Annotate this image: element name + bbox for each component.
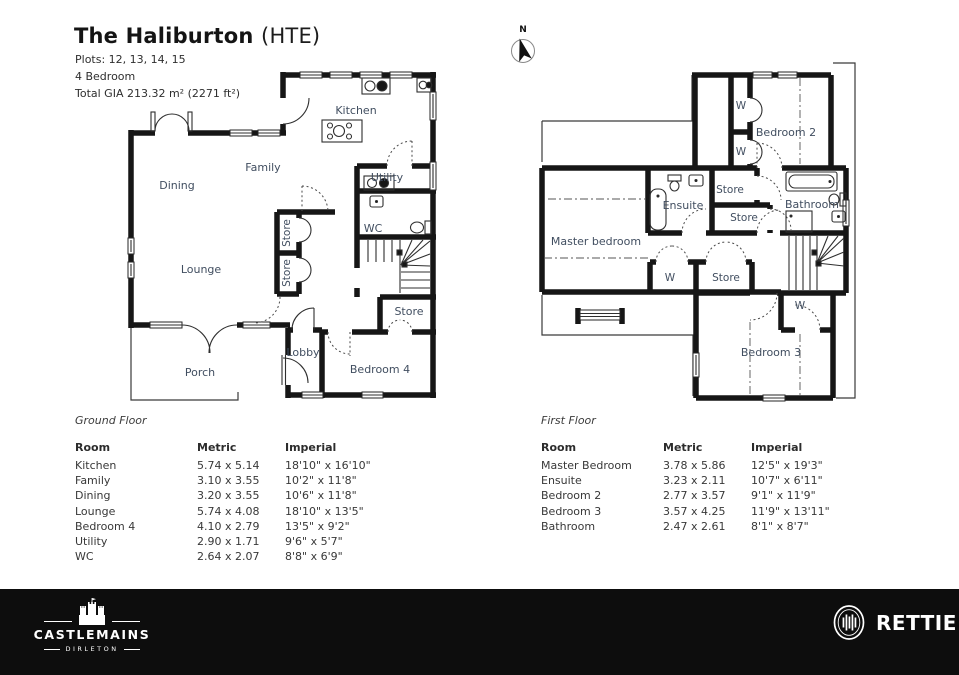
table-cell: Ensuite — [541, 473, 663, 488]
ground-floor-caption: Ground Floor — [75, 414, 147, 427]
column-header-metric: Metric — [663, 441, 751, 458]
table-cell: 18'10" x 13'5" — [285, 504, 410, 519]
room-label-master: Master bedroom — [551, 235, 641, 248]
ground-floor-table: Room Metric Imperial Kitchen5.74 x 5.141… — [75, 441, 410, 564]
room-label-dining: Dining — [159, 179, 195, 192]
first-floor-table: Room Metric Imperial Master Bedroom3.78 … — [541, 441, 876, 534]
room-label-store-br: Store — [394, 305, 423, 318]
first-stairs — [789, 236, 844, 290]
table-row: Bathroom2.47 x 2.618'1" x 8'7" — [541, 519, 876, 534]
room-label-bedroom3: Bedroom 3 — [741, 346, 801, 359]
table-cell: 2.47 x 2.61 — [663, 519, 751, 534]
room-label-store-lower: Store — [730, 212, 758, 224]
table-row: WC2.64 x 2.078'8" x 6'9" — [75, 549, 410, 564]
room-label-porch: Porch — [185, 366, 215, 379]
table-cell: Bedroom 2 — [541, 488, 663, 503]
table-cell: Bedroom 4 — [75, 519, 197, 534]
table-cell: Bathroom — [541, 519, 663, 534]
room-label-store-master: Store — [712, 272, 740, 284]
room-label-ensuite: Ensuite — [663, 199, 704, 212]
column-header-imperial: Imperial — [751, 441, 876, 458]
column-header-room: Room — [75, 441, 197, 458]
table-cell: 3.20 x 3.55 — [197, 488, 285, 503]
rettie-emblem-icon — [831, 604, 867, 641]
compass-needle — [513, 37, 531, 62]
table-cell: Kitchen — [75, 458, 197, 473]
north-label: N — [519, 25, 527, 35]
sub-rule-right — [124, 649, 140, 650]
table-cell: 2.90 x 1.71 — [197, 534, 285, 549]
table-cell: Family — [75, 473, 197, 488]
table-cell: 3.23 x 2.11 — [663, 473, 751, 488]
room-label-store-hall-bottom: Store — [281, 259, 293, 287]
room-label-w1: W — [736, 100, 747, 112]
table-cell: 5.74 x 4.08 — [197, 504, 285, 519]
column-header-room: Room — [541, 441, 663, 458]
castle-icon — [77, 598, 107, 625]
table-cell: 10'6" x 11'8" — [285, 488, 410, 503]
room-label-utility: Utility — [371, 171, 404, 184]
room-label-store-hall-top: Store — [281, 219, 293, 247]
table-cell: 10'7" x 6'11" — [751, 473, 876, 488]
table-cell: 3.57 x 4.25 — [663, 504, 751, 519]
table-cell: 3.10 x 3.55 — [197, 473, 285, 488]
table-cell: 4.10 x 2.79 — [197, 519, 285, 534]
rettie-name: RETTIE — [876, 611, 957, 635]
page-title-main: The Haliburton — [74, 24, 254, 48]
porch-outline — [131, 328, 238, 400]
table-cell: 2.77 x 3.57 — [663, 488, 751, 503]
table-cell: Bedroom 3 — [541, 504, 663, 519]
table-row: Kitchen5.74 x 5.1418'10" x 16'10" — [75, 458, 410, 473]
table-cell: Master Bedroom — [541, 458, 663, 473]
column-header-metric: Metric — [197, 441, 285, 458]
page-title: The Haliburton (HTE) — [74, 24, 320, 48]
floorplan-sheet: The Haliburton (HTE) Plots: 12, 13, 14, … — [0, 0, 959, 675]
table-cell: 11'9" x 13'11" — [751, 504, 876, 519]
logo-rule-right — [112, 621, 140, 622]
page-title-suffix: (HTE) — [261, 24, 320, 48]
table-cell: Dining — [75, 488, 197, 503]
room-label-lobby: Lobby — [286, 346, 320, 359]
logo-rule-left — [44, 621, 72, 622]
ground-floor-plan: Kitchen Family Dining Lounge Utility WC … — [113, 60, 443, 410]
column-header-imperial: Imperial — [285, 441, 410, 458]
table-row: Master Bedroom3.78 x 5.8612'5" x 19'3" — [541, 458, 876, 473]
room-label-bedroom4: Bedroom 4 — [350, 363, 410, 376]
room-label-store-upper: Store — [716, 184, 744, 196]
table-row: Utility2.90 x 1.719'6" x 5'7" — [75, 534, 410, 549]
room-label-lounge: Lounge — [181, 263, 222, 276]
ground-table-header: Room Metric Imperial — [75, 441, 410, 458]
ground-stairs — [368, 240, 430, 293]
room-label-wc: WC — [364, 222, 383, 235]
table-cell: 10'2" x 11'8" — [285, 473, 410, 488]
castlemains-sub: DIRLETON — [65, 645, 118, 653]
table-row: Bedroom 33.57 x 4.2511'9" x 13'11" — [541, 504, 876, 519]
table-cell: 9'1" x 11'9" — [751, 488, 876, 503]
table-cell: Lounge — [75, 504, 197, 519]
room-label-bathroom: Bathroom — [785, 198, 839, 211]
table-row: Bedroom 44.10 x 2.7913'5" x 9'2" — [75, 519, 410, 534]
first-floor-plan: Master bedroom Bedroom 2 Bedroom 3 Ensui… — [530, 60, 860, 410]
room-label-w2: W — [736, 146, 747, 158]
first-table-header: Room Metric Imperial — [541, 441, 876, 458]
room-label-family: Family — [245, 161, 281, 174]
castlemains-name: CASTLEMAINS — [30, 627, 154, 642]
first-floor-caption: First Floor — [541, 414, 596, 427]
first-table-body: Master Bedroom3.78 x 5.8612'5" x 19'3"En… — [541, 458, 876, 534]
table-cell: 13'5" x 9'2" — [285, 519, 410, 534]
room-label-bedroom2: Bedroom 2 — [756, 126, 816, 139]
table-row: Family3.10 x 3.5510'2" x 11'8" — [75, 473, 410, 488]
table-row: Dining3.20 x 3.5510'6" x 11'8" — [75, 488, 410, 503]
table-cell: 2.64 x 2.07 — [197, 549, 285, 564]
table-cell: 5.74 x 5.14 — [197, 458, 285, 473]
castlemains-logo: CASTLEMAINS DIRLETON — [30, 598, 154, 653]
ground-fixtures — [322, 78, 432, 234]
table-row: Bedroom 22.77 x 3.579'1" x 11'9" — [541, 488, 876, 503]
table-row: Ensuite3.23 x 2.1110'7" x 6'11" — [541, 473, 876, 488]
room-label-w-master: W — [665, 272, 676, 284]
footer-bar: CASTLEMAINS DIRLETON RETTIE — [0, 589, 959, 675]
sub-rule-left — [44, 649, 60, 650]
table-cell: 12'5" x 19'3" — [751, 458, 876, 473]
table-cell: Utility — [75, 534, 197, 549]
room-label-w-bed3: W — [795, 300, 806, 312]
table-cell: 8'1" x 8'7" — [751, 519, 876, 534]
table-row: Lounge5.74 x 4.0818'10" x 13'5" — [75, 504, 410, 519]
table-cell: 3.78 x 5.86 — [663, 458, 751, 473]
table-cell: 9'6" x 5'7" — [285, 534, 410, 549]
room-label-kitchen: Kitchen — [335, 104, 376, 117]
ground-table-body: Kitchen5.74 x 5.1418'10" x 16'10"Family3… — [75, 458, 410, 564]
table-cell: 8'8" x 6'9" — [285, 549, 410, 564]
table-cell: 18'10" x 16'10" — [285, 458, 410, 473]
rettie-logo: RETTIE — [831, 604, 957, 641]
table-cell: WC — [75, 549, 197, 564]
